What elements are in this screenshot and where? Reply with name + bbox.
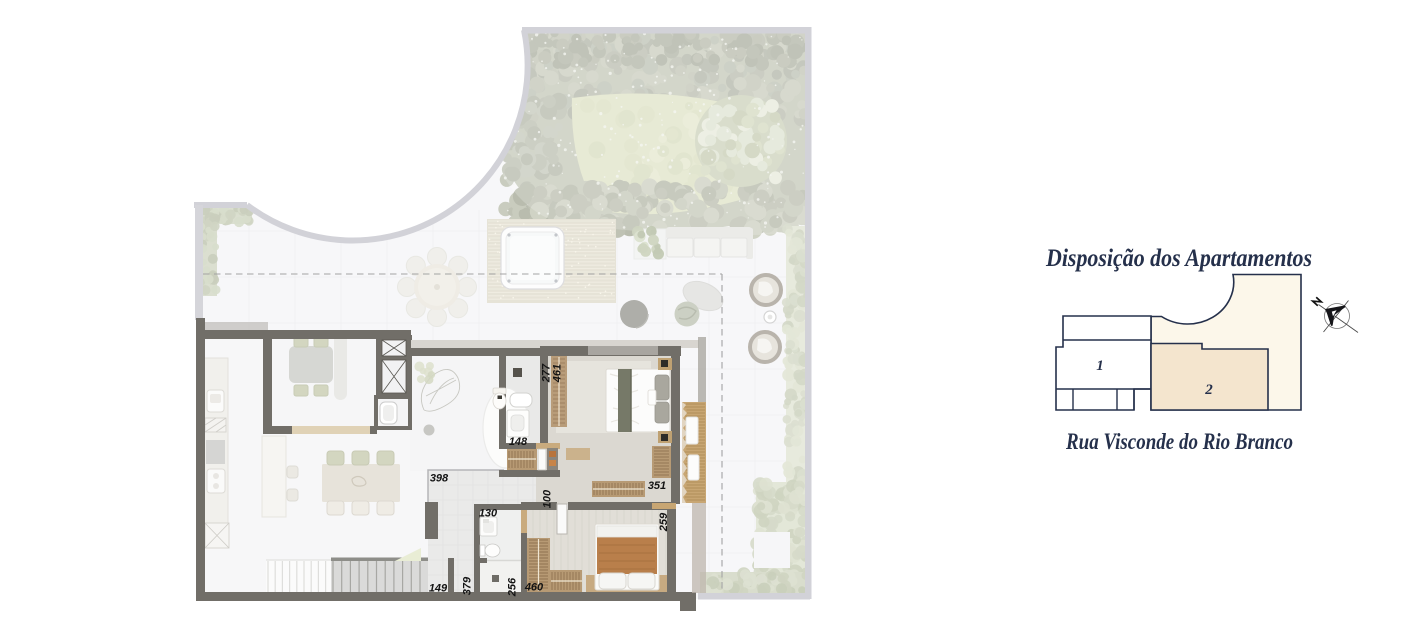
svg-text:460: 460 — [524, 582, 544, 594]
svg-text:130: 130 — [479, 508, 498, 520]
svg-text:100: 100 — [542, 489, 554, 508]
svg-text:149: 149 — [429, 583, 448, 595]
svg-text:398: 398 — [430, 473, 449, 485]
svg-text:256: 256 — [507, 577, 519, 597]
svg-text:351: 351 — [648, 480, 666, 492]
svg-text:1: 1 — [1096, 358, 1104, 374]
svg-text:379: 379 — [462, 576, 474, 595]
svg-text:Rua Visconde do Rio Branco: Rua Visconde do Rio Branco — [1065, 429, 1293, 455]
svg-text:Disposição dos Apartamentos: Disposição dos Apartamentos — [1045, 243, 1312, 272]
svg-text:259: 259 — [658, 512, 670, 532]
svg-text:2: 2 — [1204, 382, 1213, 398]
svg-text:148: 148 — [509, 436, 528, 448]
svg-text:461: 461 — [552, 364, 564, 383]
